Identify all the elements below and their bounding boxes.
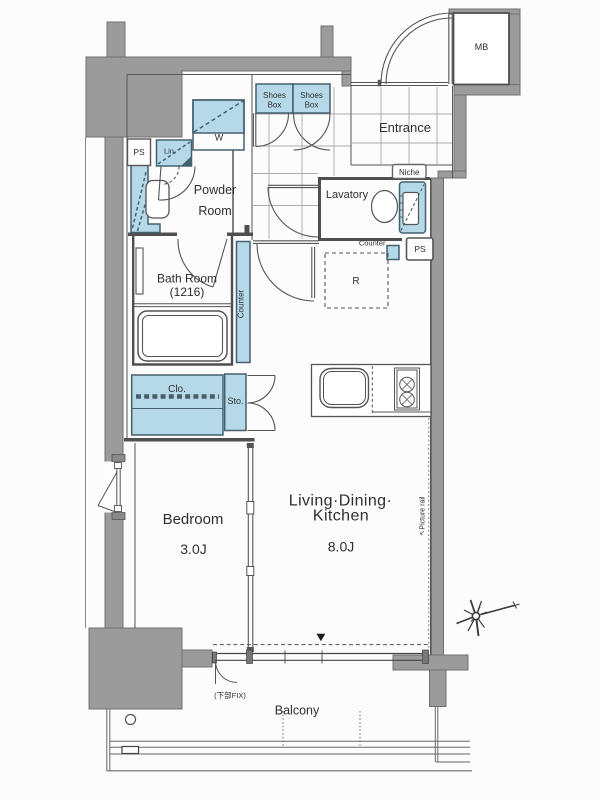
svg-text:PS: PS [414,244,426,254]
svg-text:Powder: Powder [194,183,236,197]
svg-text:Sto.: Sto. [227,396,243,406]
svg-text:Balcony: Balcony [275,704,320,718]
svg-text:(1216): (1216) [170,285,205,299]
svg-text:Counter: Counter [359,239,386,248]
svg-text:W: W [215,133,224,143]
svg-text:Box: Box [305,101,319,110]
svg-text:Clo.: Clo. [168,384,186,395]
svg-text:Shoes: Shoes [263,91,286,100]
svg-text:Lavatory: Lavatory [326,189,369,201]
svg-text:Niche: Niche [399,168,420,177]
svg-text:Room: Room [198,204,231,218]
svg-text:8.0J: 8.0J [328,539,354,555]
svg-text:Lin.: Lin. [164,147,176,156]
svg-text:Entrance: Entrance [379,120,431,135]
svg-text:MB: MB [475,42,489,52]
svg-text:PS: PS [133,147,145,157]
svg-text:Bath Room: Bath Room [157,272,217,286]
svg-text:Shoes: Shoes [300,91,323,100]
svg-text:Bedroom: Bedroom [163,511,224,528]
svg-text:Kitchen: Kitchen [313,508,369,525]
svg-text:(下部FIX): (下部FIX) [214,690,246,700]
svg-text:R: R [352,276,359,287]
svg-text:Counter: Counter [237,289,246,318]
svg-text:3.0J: 3.0J [180,541,206,557]
svg-text:Box: Box [268,101,282,110]
svg-text:↖Picture rail: ↖Picture rail [420,496,427,535]
